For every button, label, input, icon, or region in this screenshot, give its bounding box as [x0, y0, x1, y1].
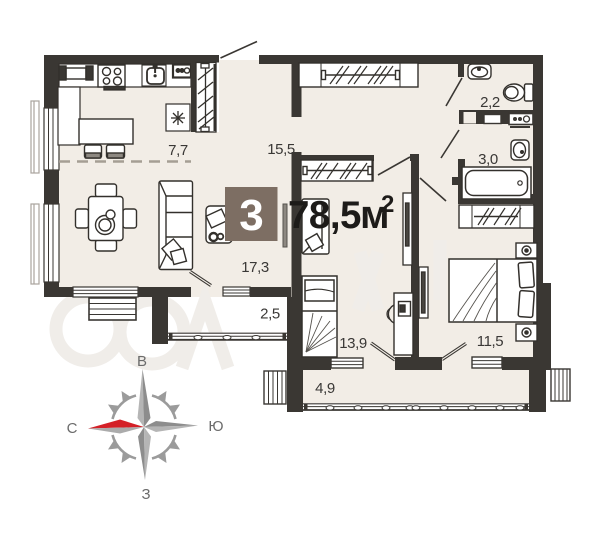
svg-text:2,2: 2,2 [480, 94, 500, 111]
svg-text:7,7: 7,7 [168, 142, 188, 159]
svg-text:2,5: 2,5 [260, 306, 280, 323]
svg-text:З: З [141, 486, 150, 503]
svg-text:17,3: 17,3 [241, 259, 269, 276]
svg-text:11,5: 11,5 [477, 333, 504, 350]
svg-text:3: 3 [239, 191, 263, 240]
svg-text:С: С [67, 420, 78, 437]
svg-text:15,5: 15,5 [267, 141, 295, 158]
svg-text:В: В [137, 353, 147, 370]
svg-text:2: 2 [381, 191, 394, 218]
svg-text:Ю: Ю [208, 418, 223, 435]
svg-text:13,9: 13,9 [339, 335, 367, 352]
svg-text:78,5: 78,5 [288, 194, 361, 237]
svg-text:4,9: 4,9 [315, 380, 335, 397]
svg-text:3,0: 3,0 [478, 151, 498, 168]
